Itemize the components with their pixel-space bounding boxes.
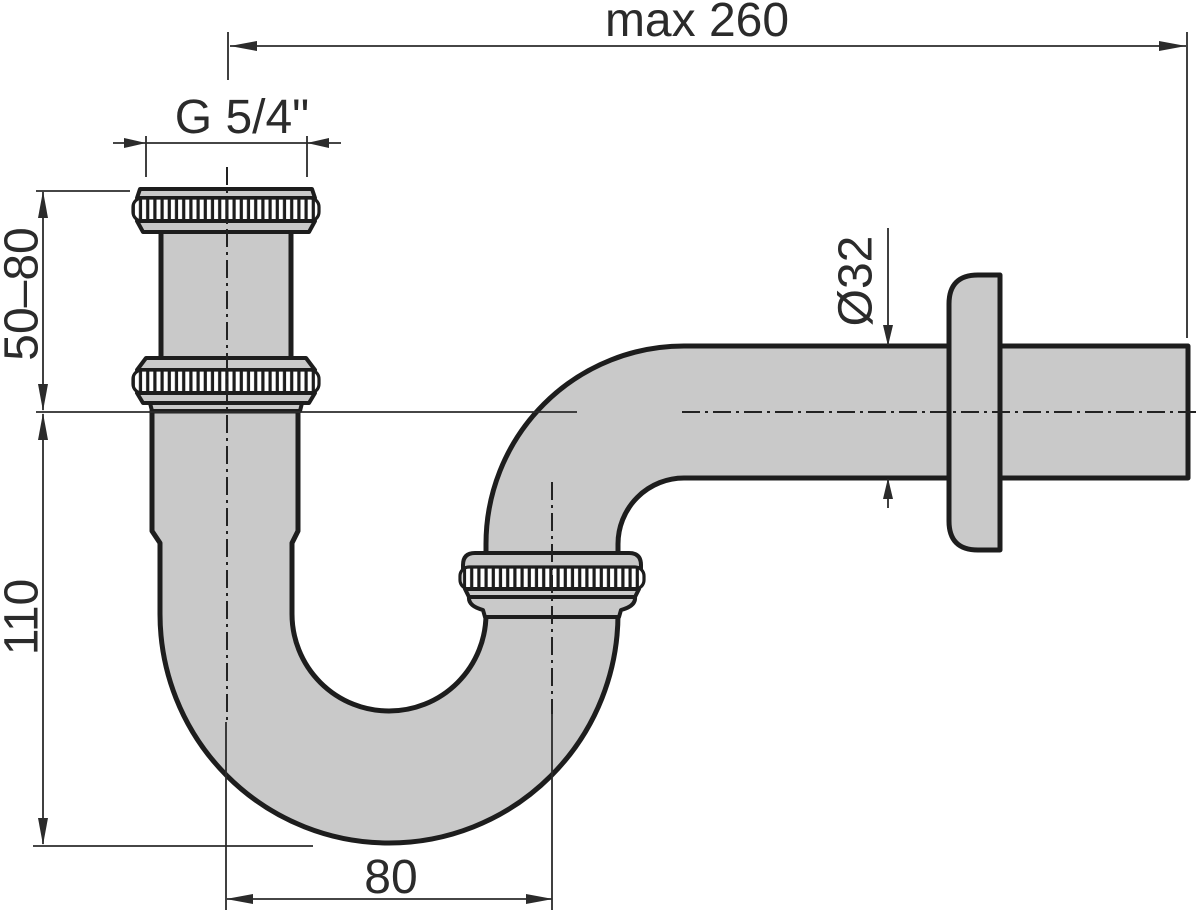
pipe-diameter-arrow-bottom [883,478,893,499]
bend-offset-arrow-right [526,894,553,904]
max-width-label: max 260 [605,0,789,47]
dimension-inlet-thread: G 5/4" [113,91,341,177]
max-width-arrow-left [230,41,257,51]
pipe-body-group [133,189,1188,843]
inlet-thread-arrow-right [307,138,329,148]
siphon-trap-technical-drawing: max 260 G 5/4" 50–80 110 Ø32 [0,0,1200,910]
inlet-thread-label: G 5/4" [175,91,309,144]
pipe-diameter-arrow-top [883,325,893,346]
trap-depth-arrow-bottom [38,818,48,845]
inlet-thread-arrow-left [124,138,146,148]
trap-depth-label: 110 [0,579,49,656]
inlet-height-arrow-top [38,191,48,218]
dimension-max-width: max 260 [228,0,1187,338]
inlet-height-arrow-bottom [38,384,48,411]
trap-depth-arrow-top [38,413,48,440]
max-width-arrow-right [1159,41,1186,51]
pipe-diameter-label: Ø32 [830,236,883,327]
trap-body [152,346,1188,843]
inlet-height-label: 50–80 [0,227,49,360]
bend-offset-label: 80 [364,851,417,904]
bend-offset-arrow-left [226,894,253,904]
technical-drawing-page: max 260 G 5/4" 50–80 110 Ø32 [0,0,1200,910]
